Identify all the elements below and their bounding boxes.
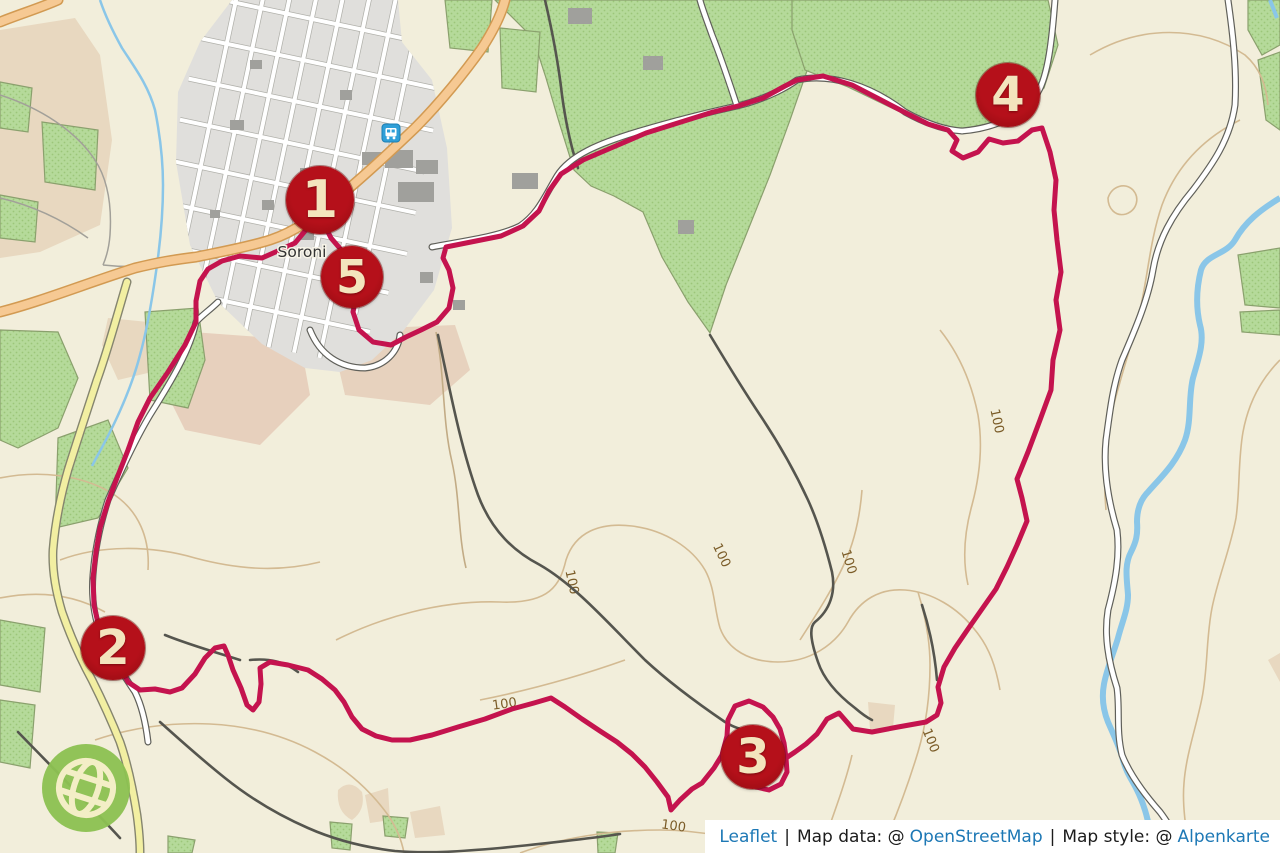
marker-number: 5	[336, 254, 368, 300]
bus-stop-icon	[382, 124, 400, 142]
map-data-label: Map data: @	[797, 827, 905, 847]
town-label: Soroni	[278, 243, 327, 261]
marker-number: 4	[991, 71, 1024, 119]
marker-number: 1	[302, 174, 338, 226]
attribution-bar: Leaflet | Map data: @ OpenStreetMap | Ma…	[705, 820, 1280, 853]
attribution-separator: |	[784, 827, 790, 847]
route-marker-4[interactable]: 4	[976, 63, 1040, 127]
attribution-separator: |	[1050, 827, 1056, 847]
openstreetmap-link[interactable]: OpenStreetMap	[910, 827, 1043, 847]
leaflet-map-canvas[interactable]: 100 100 100 100 100 100 100	[0, 0, 1280, 853]
alpenkarte-link[interactable]: Alpenkarte	[1178, 827, 1270, 847]
map-style-label: Map style: @	[1062, 827, 1172, 847]
leaflet-link[interactable]: Leaflet	[719, 827, 777, 847]
marker-number: 3	[736, 733, 769, 781]
route-marker-5[interactable]: 5	[321, 246, 383, 308]
route-marker-3[interactable]: 3	[721, 725, 785, 789]
route-marker-1[interactable]: 1	[286, 166, 354, 234]
marker-number: 2	[96, 624, 129, 672]
globe-logo-icon	[42, 744, 130, 832]
map-tiles: 100 100 100 100 100 100 100	[0, 0, 1280, 853]
route-marker-2[interactable]: 2	[81, 616, 145, 680]
